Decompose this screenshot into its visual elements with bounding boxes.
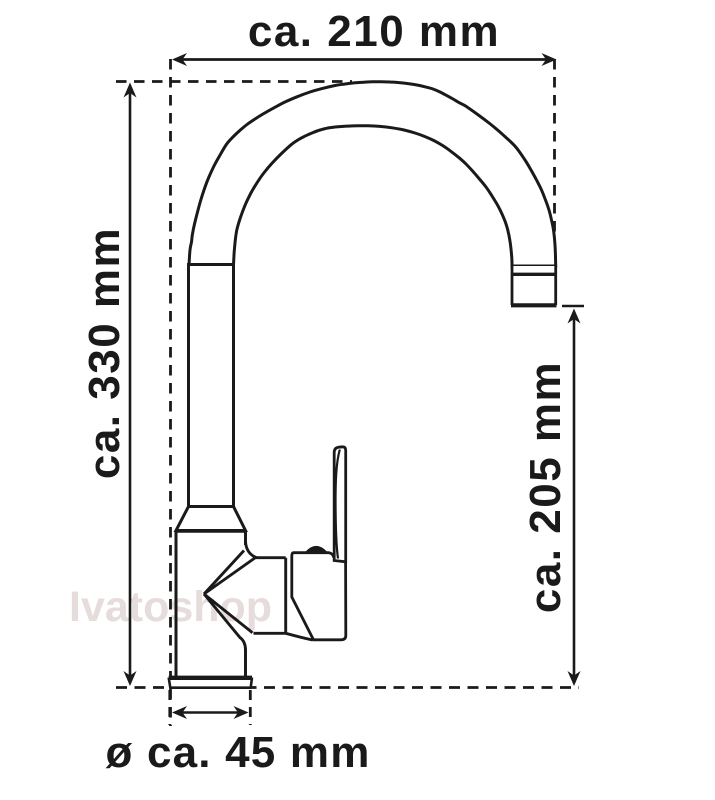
svg-text:Ivatoshop: Ivatoshop [69,583,272,631]
svg-text:ca. 205 mm: ca. 205 mm [521,361,570,613]
svg-text:ca. 330 mm: ca. 330 mm [80,227,129,479]
svg-text:ca. 210 mm: ca. 210 mm [248,7,500,56]
svg-text:ø ca. 45 mm: ø ca. 45 mm [105,728,370,777]
